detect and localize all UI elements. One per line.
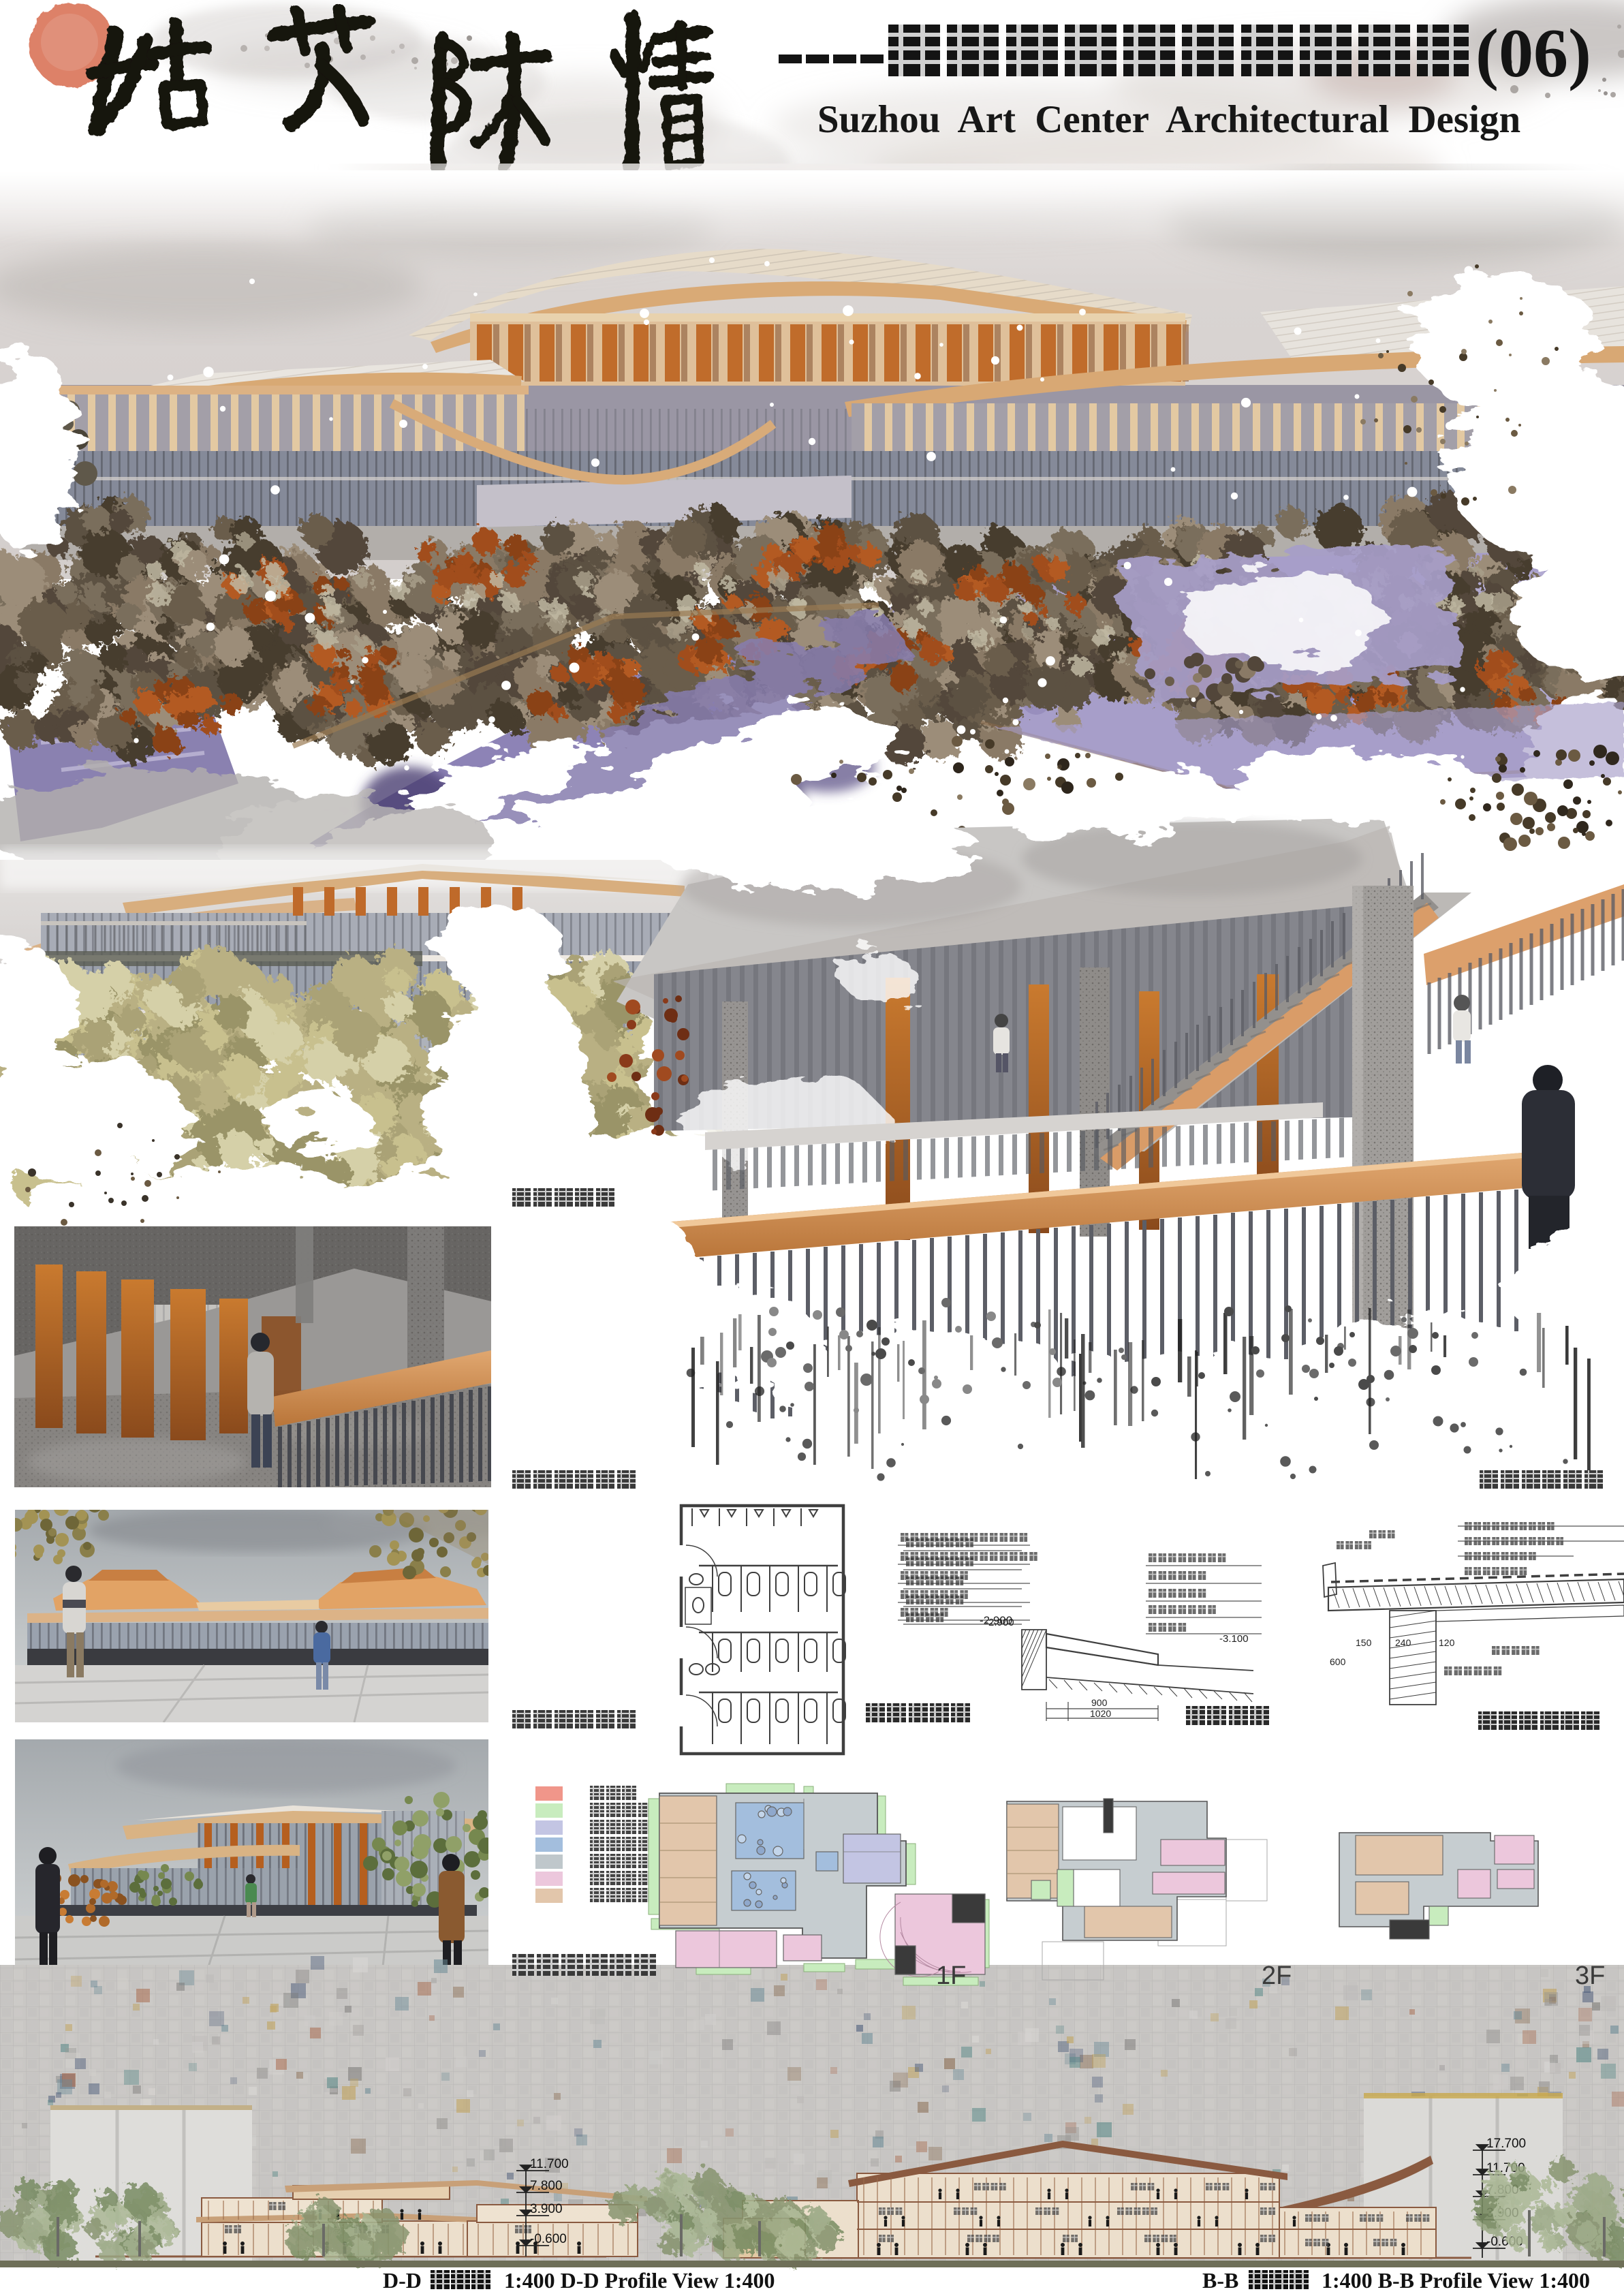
svg-text:1F: 1F [936, 1961, 966, 1990]
svg-text:120: 120 [1439, 1637, 1455, 1648]
svg-text:2F: 2F [1262, 1961, 1292, 1990]
svg-text:-3.100: -3.100 [1219, 1633, 1249, 1645]
svg-text:-0.600: -0.600 [530, 2232, 567, 2246]
svg-text:150: 150 [1356, 1637, 1372, 1648]
svg-text:Suzhou Art Center Architectura: Suzhou Art Center Architectural Design [817, 98, 1520, 141]
svg-text:3F: 3F [1575, 1961, 1605, 1990]
svg-text:7.800: 7.800 [530, 2179, 563, 2193]
svg-text:1020: 1020 [1090, 1708, 1111, 1719]
svg-text:600: 600 [1330, 1656, 1346, 1667]
svg-text:240: 240 [1395, 1637, 1411, 1648]
svg-text:17.700: 17.700 [1486, 2137, 1526, 2151]
svg-text:3.900: 3.900 [530, 2202, 563, 2216]
svg-text:(06): (06) [1475, 15, 1591, 92]
svg-text:-2.900: -2.900 [985, 1617, 1014, 1628]
svg-text:900: 900 [1091, 1697, 1108, 1708]
svg-text:11.700: 11.700 [530, 2157, 569, 2171]
